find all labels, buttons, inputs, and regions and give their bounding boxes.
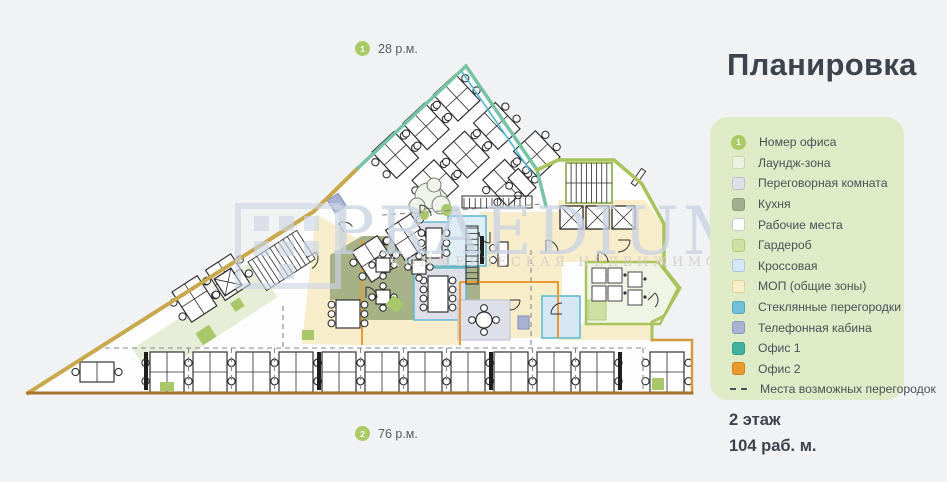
legend-item-label: Кроссовая [758,259,817,273]
legend-swatch [732,280,745,293]
legend-swatch [732,321,745,334]
legend-swatch [732,301,745,314]
legend-swatch [732,239,745,252]
legend-item-label: МОП (общие зоны) [758,279,866,293]
legend-item: Кухня [732,194,894,215]
marker-2-badge: 2 [355,426,370,441]
legend-swatch [732,218,745,231]
page-title: Планировка [727,47,917,83]
legend-item-label: Лаундж-зона [758,156,831,170]
legend-item: Места возможных перегородок [732,379,894,400]
legend-item-label: Офис 1 [758,341,801,355]
legend-item-label: Кухня [758,197,791,211]
workplaces-count: 104 раб. м. [729,437,817,456]
legend-item-label: Места возможных перегородок [760,382,936,396]
legend-item: Гардероб [732,235,894,256]
legend-item-label: Рабочие места [758,218,843,232]
floor-summary: 2 этаж 104 раб. м. [729,411,817,456]
legend-item: Кроссовая [732,256,894,277]
marker-2-label: 76 р.м. [378,427,418,441]
legend-swatch: 1 [731,135,746,150]
legend-swatch [732,362,745,375]
legend-item-label: Гардероб [758,238,812,252]
legend-item: Переговорная комната [732,173,894,194]
marker-office-1: 1 28 р.м. [355,41,418,56]
legend-item: 1 Номер офиса [732,132,894,153]
legend-swatch [732,198,745,211]
legend-swatch [730,388,747,390]
floor-number: 2 этаж [729,411,817,430]
watermark-subtitle: КОММЕРЧЕСКАЯ НЕДВИЖИМОСТЬ [390,255,710,270]
legend-swatch [732,156,745,169]
zone-garderob [588,300,606,320]
legend-item: МОП (общие зоны) [732,276,894,297]
legend-item-label: Офис 2 [758,362,801,376]
legend-item: Стеклянные перегородки [732,297,894,318]
zone-krossovaya [542,296,580,338]
legend-item: Офис 2 [732,359,894,380]
legend-swatch [732,177,745,190]
floor-plan-page: PRAEDIUM КОММЕРЧЕСКАЯ НЕДВИЖИМОСТЬ 1 28 … [0,0,947,482]
legend-item-label: Переговорная комната [758,176,888,190]
legend-item-label: Телефонная кабина [758,321,872,335]
legend-panel: 1 Номер офиса Лаундж-зона Переговорная к… [710,117,904,400]
legend-item-label: Номер офиса [759,135,836,149]
marker-office-2: 2 76 р.м. [355,426,418,441]
legend-item-label: Стеклянные перегородки [758,300,901,314]
legend-item: Телефонная кабина [732,317,894,338]
marker-1-badge: 1 [355,41,370,56]
legend-item: Лаундж-зона [732,153,894,174]
legend-swatch [732,342,745,355]
marker-1-label: 28 р.м. [378,42,418,56]
legend-item: Офис 1 [732,338,894,359]
floor-plan-drawing: PRAEDIUM КОММЕРЧЕСКАЯ НЕДВИЖИМОСТЬ [0,0,710,482]
legend-item: Рабочие места [732,214,894,235]
legend-swatch [732,259,745,272]
